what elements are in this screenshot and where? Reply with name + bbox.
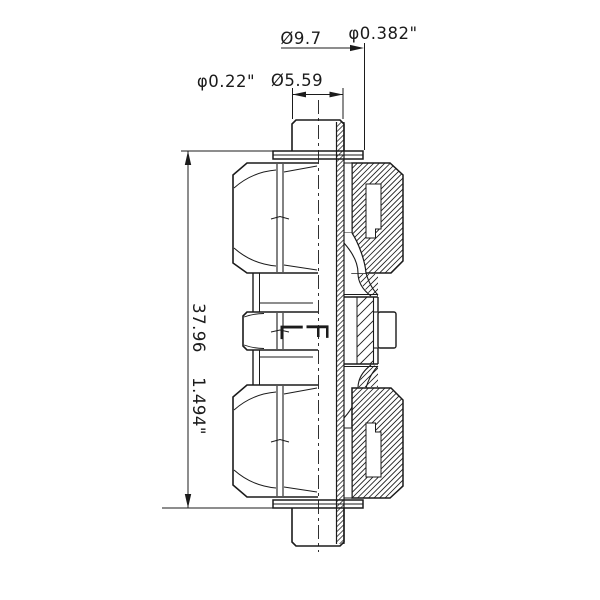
lower-neck [253,350,313,385]
technical-drawing: 37.96 1.494" Ø9.7 φ0.382" Ø5.59 φ0.22" L… [0,0,600,600]
dim-overall-length: 37.96 1.494" [162,151,280,508]
drawing-canvas: 37.96 1.494" Ø9.7 φ0.382" Ø5.59 φ0.22" L… [0,0,600,600]
bottom-nut-section [242,388,512,498]
dim-flange-mm-label: Ø9.7 [280,29,321,48]
top-nut [233,163,318,273]
arrow-up [185,151,191,165]
dim-stem-in-label: φ0.22" [197,72,255,91]
top-flange [273,151,363,159]
upper-neck [253,273,313,312]
dim-length-in-label: 1.494" [189,377,208,435]
part-marking: L F [273,322,334,339]
bottom-nut [233,385,318,497]
body-wing [378,312,396,348]
arrow-right [350,45,364,51]
dim-length-mm-label: 37.96 [189,303,208,353]
dim-stem-mm-label: Ø5.59 [271,71,323,90]
arrow-right [330,92,344,98]
marking-char-F: F [299,322,334,339]
dim-stem-diameter: Ø5.59 φ0.22" [197,71,343,119]
top-nut-section [242,163,512,273]
arrow-down [185,494,191,508]
arrow-left [293,92,307,98]
bottom-flange [273,500,363,508]
dim-flange-in-label: φ0.382" [348,24,417,43]
